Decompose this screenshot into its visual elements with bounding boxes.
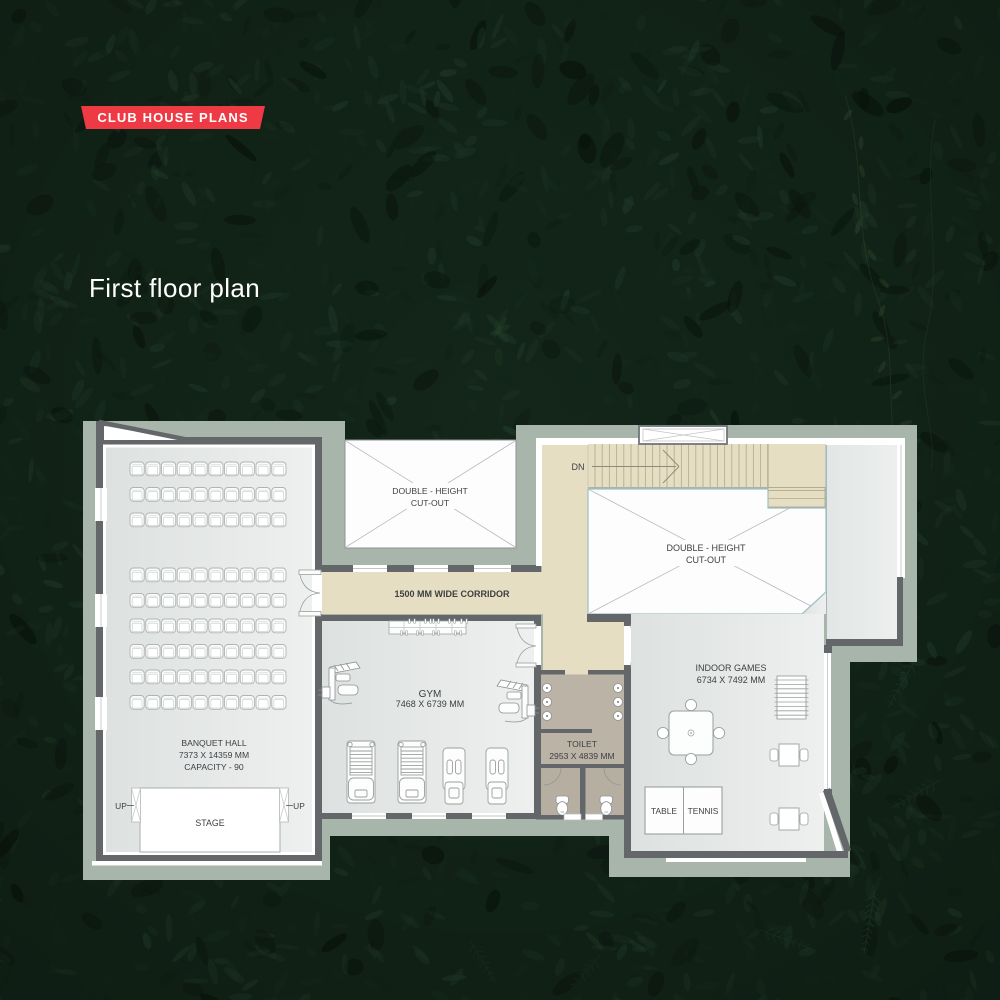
svg-text:7468 X 6739 MM: 7468 X 6739 MM: [396, 699, 465, 709]
svg-text:UP: UP: [115, 801, 127, 811]
svg-text:CUT-OUT: CUT-OUT: [411, 498, 450, 508]
svg-text:6734 X 7492 MM: 6734 X 7492 MM: [697, 675, 766, 685]
svg-text:STAGE: STAGE: [195, 818, 224, 828]
svg-text:UP: UP: [293, 801, 305, 811]
svg-text:CUT-OUT: CUT-OUT: [686, 555, 726, 565]
svg-text:1500 MM WIDE CORRIDOR: 1500 MM WIDE CORRIDOR: [394, 589, 510, 599]
svg-text:DOUBLE - HEIGHT: DOUBLE - HEIGHT: [392, 486, 468, 496]
svg-text:7373 X 14359 MM: 7373 X 14359 MM: [179, 750, 249, 760]
svg-text:TENNIS: TENNIS: [688, 806, 719, 816]
svg-text:TOILET: TOILET: [567, 739, 598, 749]
svg-text:CAPACITY - 90: CAPACITY - 90: [184, 762, 244, 772]
svg-text:DOUBLE - HEIGHT: DOUBLE - HEIGHT: [666, 543, 746, 553]
svg-text:INDOOR GAMES: INDOOR GAMES: [695, 663, 766, 673]
svg-text:DN: DN: [572, 462, 585, 472]
svg-text:TABLE: TABLE: [651, 806, 677, 816]
svg-text:BANQUET HALL: BANQUET HALL: [181, 738, 246, 748]
svg-text:2953 X 4839 MM: 2953 X 4839 MM: [549, 751, 614, 761]
